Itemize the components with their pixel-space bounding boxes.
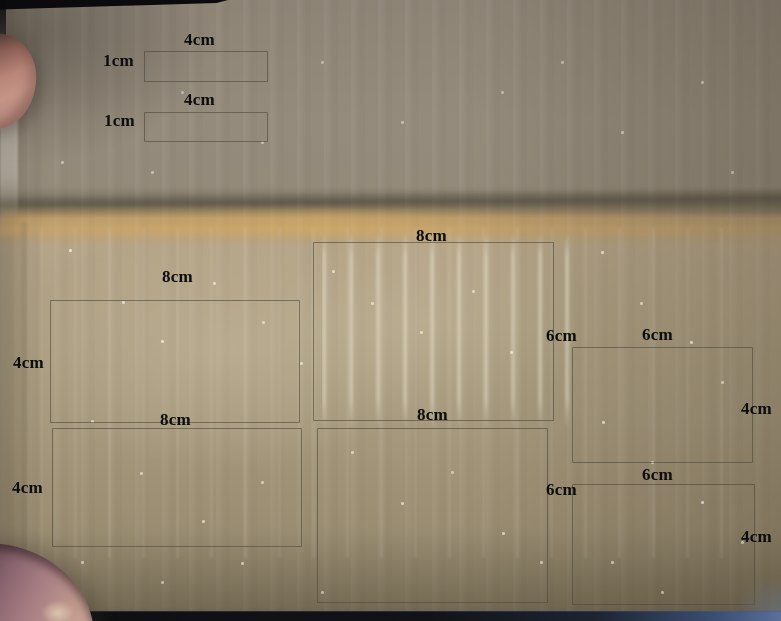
cardboard-surface: 4cm1cm4cm1cm8cm4cm8cm4cm8cm6cm8cm6cm4cm6…	[0, 0, 781, 621]
piece-outline-right-top	[572, 347, 753, 463]
dimension-label: 6cm	[642, 326, 673, 343]
dimension-label: 1cm	[103, 52, 134, 69]
dimension-label: 6cm	[546, 481, 577, 498]
bottom-right-shadow	[735, 576, 781, 614]
dimension-label: 4cm	[184, 91, 215, 108]
dimension-label: 8cm	[416, 227, 447, 244]
dimension-label: 1cm	[104, 112, 135, 129]
dimension-label: 4cm	[13, 354, 44, 371]
dimension-label: 8cm	[160, 411, 191, 428]
photo-cardboard-cutting-plan: 4cm1cm4cm1cm8cm4cm8cm4cm8cm6cm8cm6cm4cm6…	[0, 0, 781, 621]
piece-outline-center-top	[313, 242, 554, 421]
thumbnail-highlight	[42, 601, 74, 621]
dimension-label: 8cm	[162, 268, 193, 285]
dimension-label: 6cm	[546, 327, 577, 344]
dimension-label: 4cm	[741, 400, 772, 417]
dimension-label: 4cm	[184, 31, 215, 48]
piece-outline-strip-2	[144, 112, 268, 142]
dimension-label: 8cm	[417, 406, 448, 423]
piece-outline-left-bottom	[52, 428, 302, 547]
piece-outline-strip-1	[144, 51, 268, 82]
dimension-label: 4cm	[12, 479, 43, 496]
piece-outline-center-bottom	[317, 428, 548, 603]
cardboard-crease	[19, 222, 29, 557]
background-bottom-edge	[0, 611, 781, 621]
dimension-label: 4cm	[741, 528, 772, 545]
piece-outline-left-top	[50, 300, 300, 423]
piece-outline-right-bottom	[572, 484, 755, 605]
dimension-label: 6cm	[642, 466, 673, 483]
